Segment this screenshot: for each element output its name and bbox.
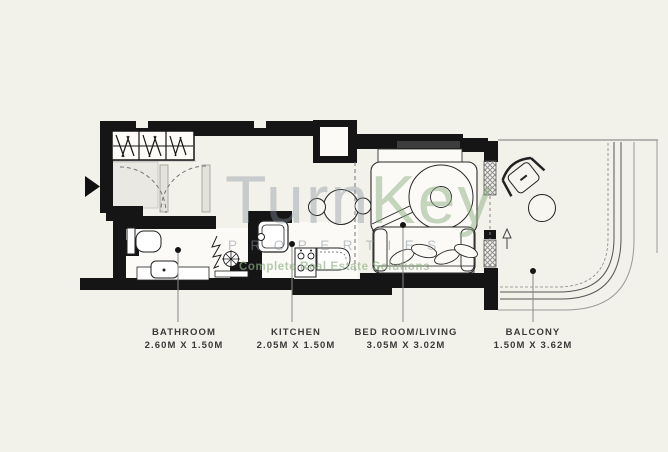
watermark-subtitle: PROPERTIES xyxy=(228,238,450,253)
watermark-tagline: Complete Real Estate Solutions xyxy=(239,261,430,273)
balcony xyxy=(497,140,658,310)
room-label-kitchen: KITCHEN 2.05M X 1.50M xyxy=(257,326,336,352)
room-dimensions: 3.05M X 3.02M xyxy=(354,339,457,352)
toilet-tank xyxy=(127,228,135,254)
balcony-table xyxy=(529,195,556,222)
room-name: KITCHEN xyxy=(257,326,336,339)
room-name: BALCONY xyxy=(494,326,573,339)
railing xyxy=(500,142,614,292)
floorplan-canvas: TurnKey PROPERTIES Complete Real Estate … xyxy=(0,0,668,452)
entry-arrow-icon xyxy=(85,176,100,197)
room-dimensions: 2.60M X 1.50M xyxy=(145,339,224,352)
watermark-brand: TurnKey xyxy=(225,166,493,234)
room-label-balcony: BALCONY 1.50M X 3.62M xyxy=(494,326,573,352)
balcony-chair xyxy=(497,151,547,199)
room-label-bathroom: BATHROOM 2.60M X 1.50M xyxy=(145,326,224,352)
closet-area xyxy=(108,161,196,208)
tv-console xyxy=(378,149,462,162)
wardrobe xyxy=(112,131,194,160)
toilet-bowl xyxy=(136,231,161,252)
room-dimensions: 2.05M X 1.50M xyxy=(257,339,336,352)
room-name: BATHROOM xyxy=(145,326,224,339)
room-name: BED ROOM/LIVING xyxy=(354,326,457,339)
room-label-bedroom-living: BED ROOM/LIVING 3.05M X 3.02M xyxy=(354,326,457,352)
balcony-direction-arrow-icon xyxy=(503,229,511,249)
room-dimensions: 1.50M X 3.62M xyxy=(494,339,573,352)
tv xyxy=(397,141,460,148)
